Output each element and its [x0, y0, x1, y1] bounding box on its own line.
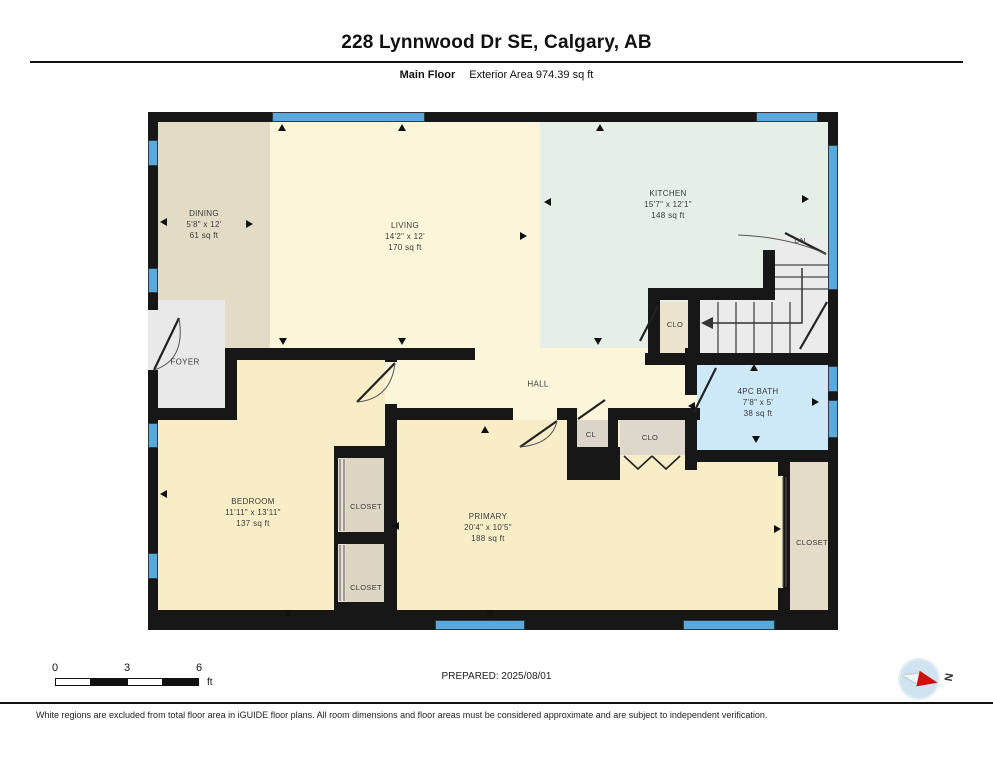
measure-arrow	[520, 232, 527, 240]
label-clo-closet: CLO	[642, 433, 658, 443]
measure-arrow	[750, 364, 758, 371]
floorplan-page: 228 Lynnwood Dr SE, Calgary, AB Main Flo…	[0, 0, 993, 768]
measure-arrow	[481, 426, 489, 433]
measure-arrow	[596, 124, 604, 131]
measure-arrow	[246, 220, 253, 228]
room-label-bedroom: BEDROOM11'11" x 13'11"137 sq ft	[225, 497, 281, 529]
room-label-kitchen: KITCHEN15'7" x 12'1"148 sq ft	[644, 189, 692, 221]
room-label-dining: DINING5'8" x 12'61 sq ft	[186, 209, 221, 241]
measure-arrow	[812, 398, 819, 406]
measure-arrow	[392, 522, 399, 530]
compass-icon: N	[898, 658, 958, 702]
disclaimer-text: White regions are excluded from total fl…	[36, 710, 966, 720]
stair-direction-label: DN	[794, 236, 805, 246]
measure-arrow	[802, 195, 809, 203]
exterior-area-label: Exterior Area 974.39 sq ft	[469, 69, 593, 81]
measure-arrow	[544, 198, 551, 206]
label-cl-closet: CL	[586, 430, 596, 440]
measure-arrow	[398, 124, 406, 131]
doors-and-stairs-drawing	[148, 112, 838, 630]
prepared-date: PREPARED: 2025/08/01	[0, 671, 993, 682]
room-label-foyer: FOYER	[170, 358, 199, 369]
measure-arrow	[774, 525, 781, 533]
measure-arrow	[398, 338, 406, 345]
compass-north-label: N	[941, 672, 954, 682]
footer-divider	[0, 702, 993, 704]
page-title: 228 Lynnwood Dr SE, Calgary, AB	[0, 32, 993, 54]
room-label-bath: 4PC BATH7'8" x 5'38 sq ft	[738, 387, 779, 419]
measure-arrow	[160, 490, 167, 498]
room-label-hall: HALL	[527, 380, 548, 391]
measure-arrow	[160, 218, 167, 226]
measure-arrow	[486, 610, 494, 617]
header-divider	[30, 61, 963, 63]
label-bedroom-closet-top: CLOSET	[350, 502, 382, 512]
floorplan-canvas: DINING5'8" x 12'61 sq ft LIVING14'2" x 1…	[148, 112, 838, 630]
measure-arrow	[284, 610, 292, 617]
measure-arrow	[594, 338, 602, 345]
room-label-primary: PRIMARY20'4" x 10'5"188 sq ft	[464, 512, 512, 544]
label-primary-closet: CLOSET	[796, 538, 828, 548]
floor-subtitle: Main FloorExterior Area 974.39 sq ft	[0, 69, 993, 81]
measure-arrow	[752, 436, 760, 443]
room-label-living: LIVING14'2" x 12'170 sq ft	[385, 221, 425, 253]
measure-arrow	[279, 338, 287, 345]
measure-arrow	[688, 402, 695, 410]
room-label-stair-closet: CLO	[667, 320, 683, 330]
label-bedroom-closet-bottom: CLOSET	[350, 583, 382, 593]
measure-arrow	[278, 124, 286, 131]
floor-name-label: Main Floor	[400, 69, 456, 81]
